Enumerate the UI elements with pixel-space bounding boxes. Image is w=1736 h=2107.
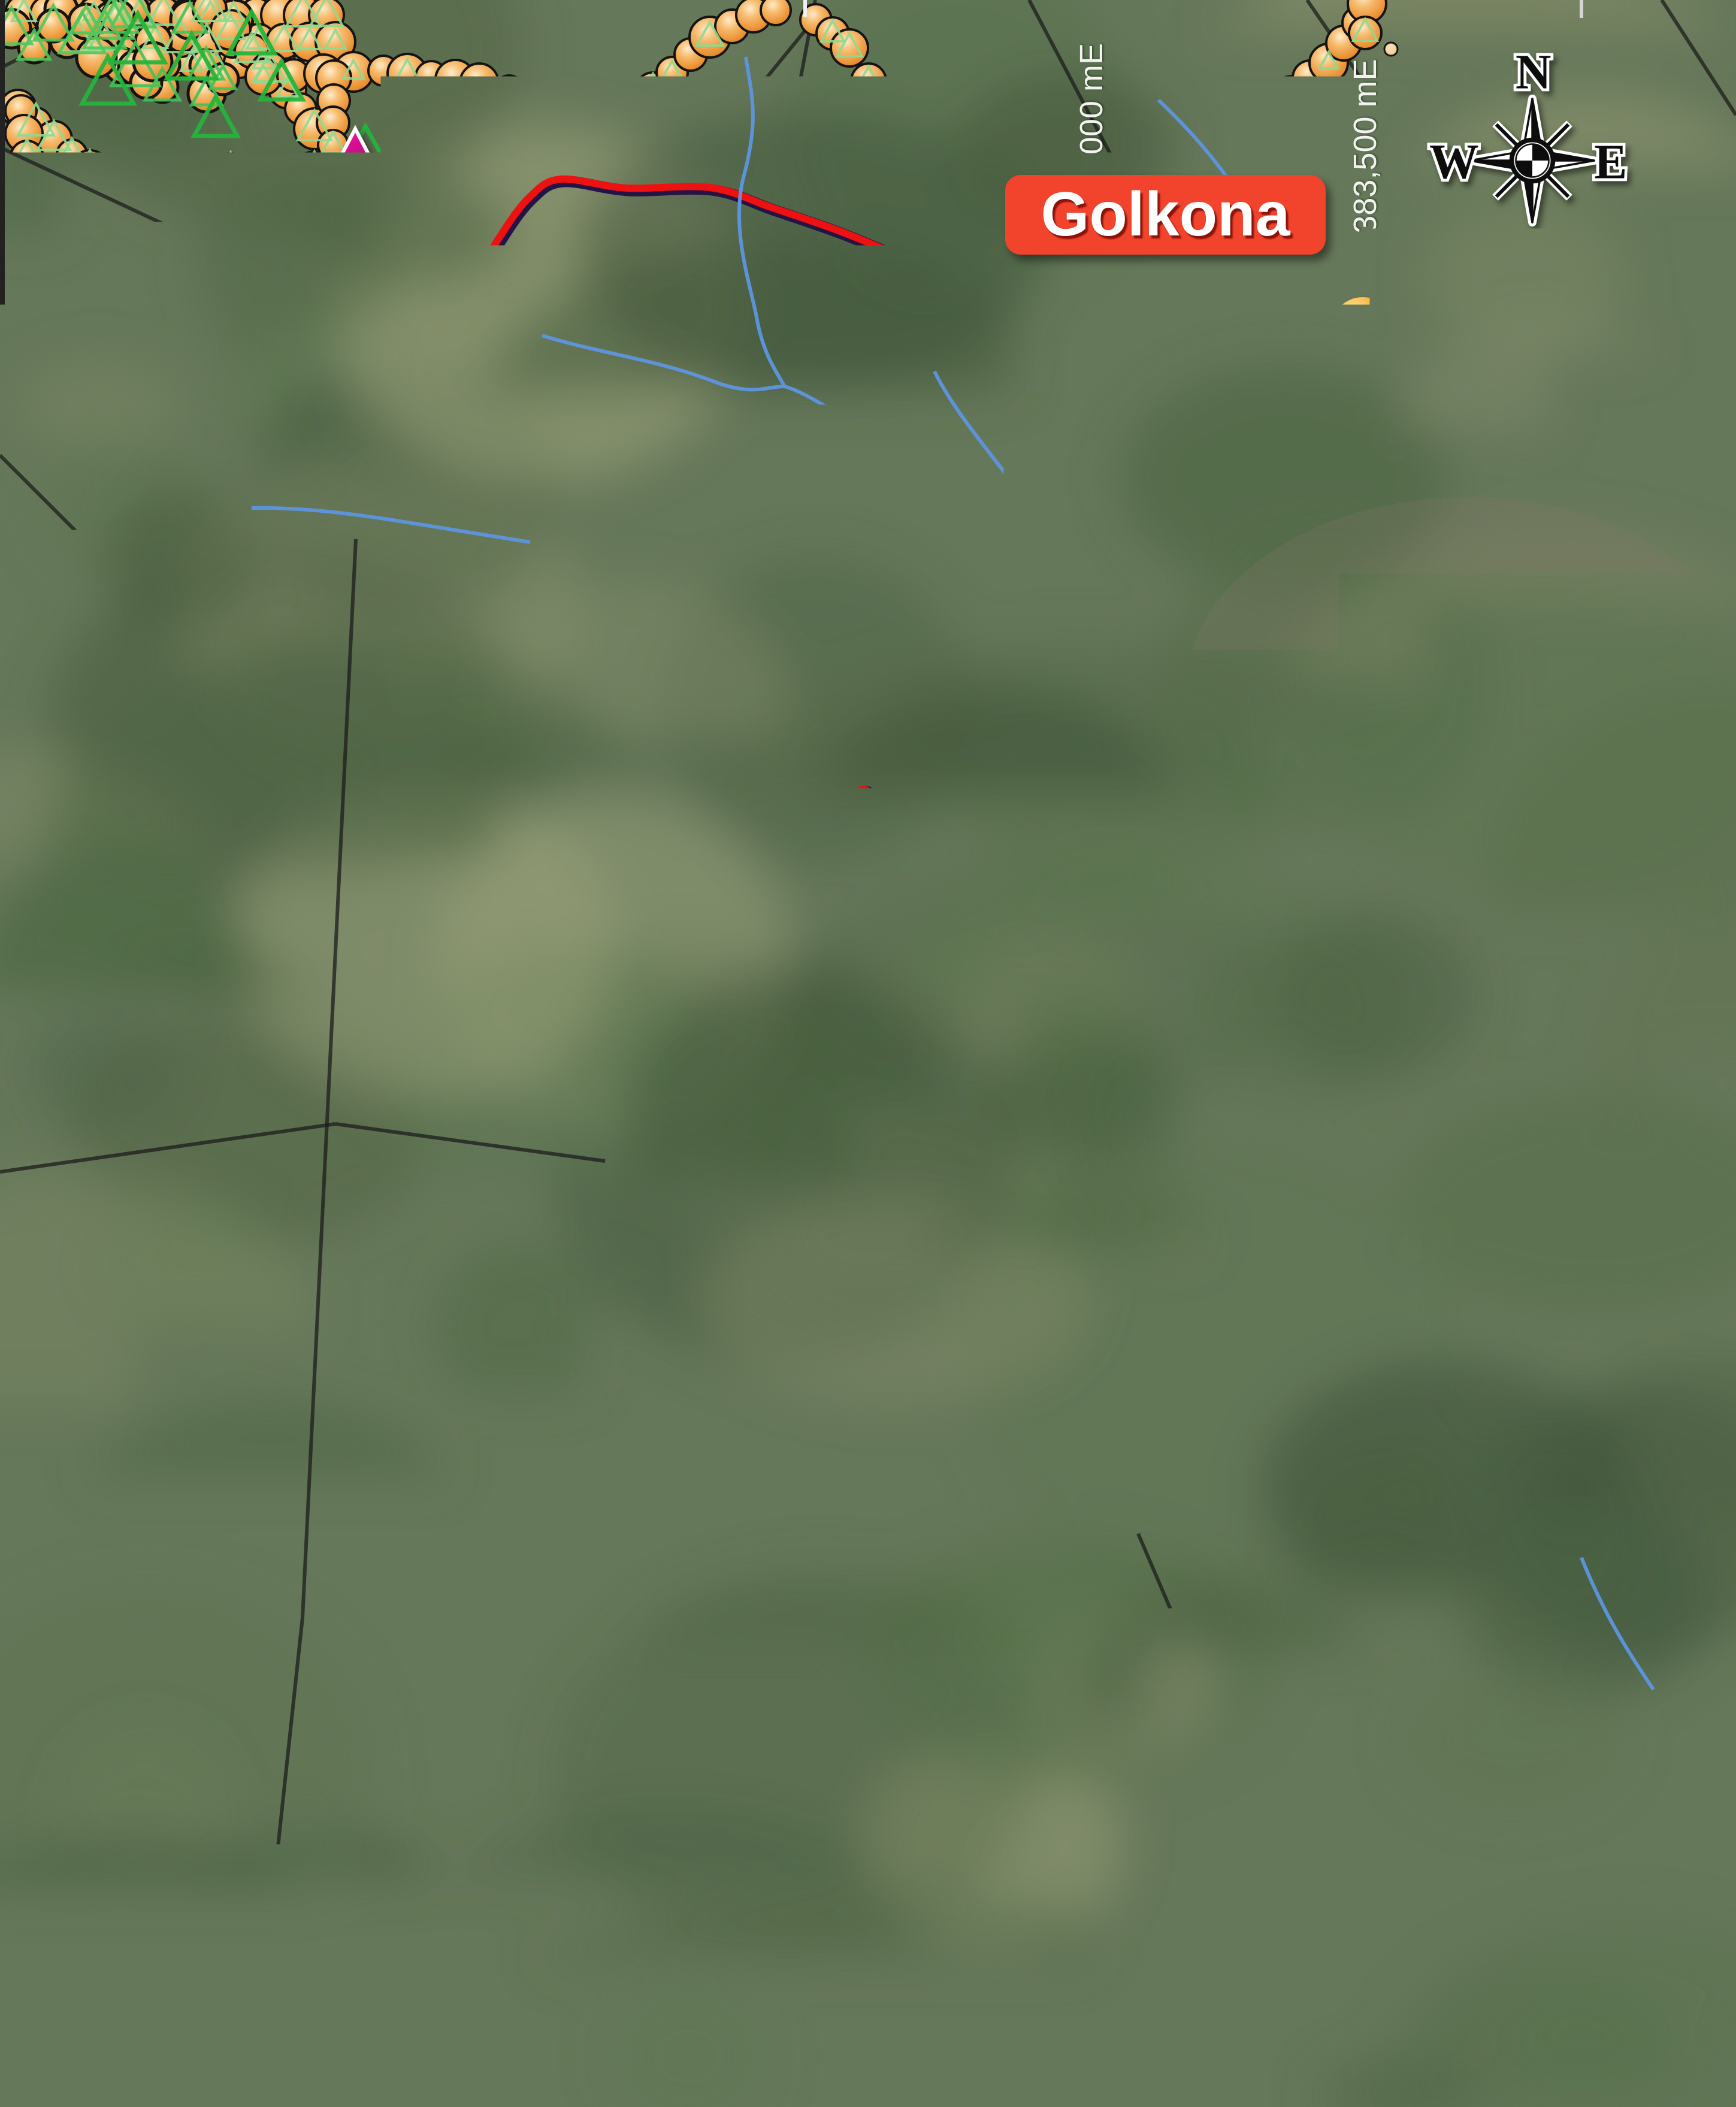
svg-text:S: S	[1520, 223, 1547, 279]
svg-text:W: W	[1429, 134, 1479, 189]
svg-text:E: E	[1594, 134, 1627, 189]
svg-text:N: N	[1516, 44, 1551, 99]
